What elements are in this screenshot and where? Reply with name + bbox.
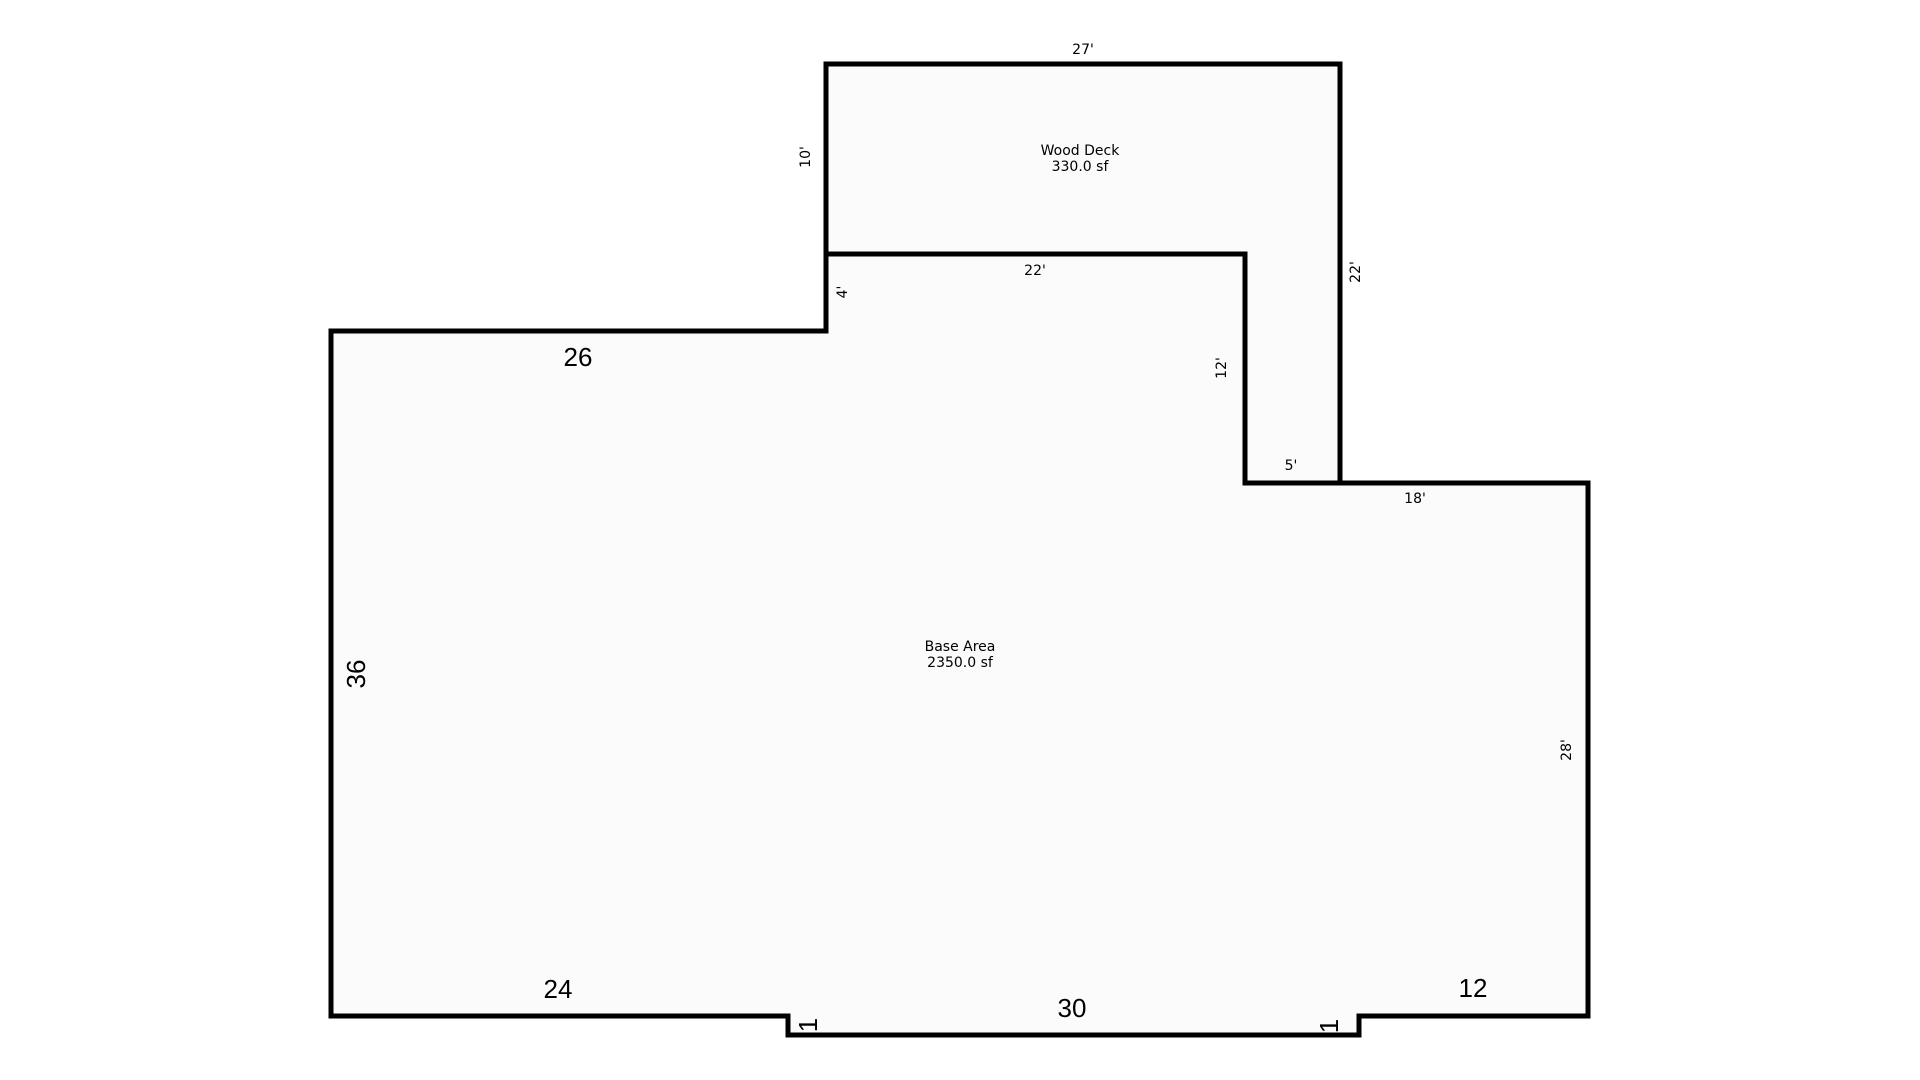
dim-base-left-36: 36 xyxy=(342,660,370,689)
dim-notch-left-1: 1 xyxy=(794,1018,822,1032)
base-area-area: 2350.0 sf xyxy=(925,655,996,671)
dim-deck-bottom-22ft: 22' xyxy=(1024,263,1046,279)
dim-base-right-28ft: 28' xyxy=(1559,739,1575,761)
floorplan-drawing xyxy=(0,0,1920,1080)
dim-notch-right-1: 1 xyxy=(1315,1019,1343,1033)
dim-strip-height-12ft: 12' xyxy=(1214,357,1230,379)
wood-deck-name: Wood Deck xyxy=(1041,143,1120,159)
dim-deck-right-22ft: 22' xyxy=(1348,261,1364,283)
dim-base-bottom-right-12: 12 xyxy=(1459,974,1488,1002)
wood-deck-area: 330.0 sf xyxy=(1041,159,1120,175)
floorplan-canvas: Wood Deck 330.0 sf Base Area 2350.0 sf 2… xyxy=(0,0,1920,1080)
dim-deck-left-10ft: 10' xyxy=(798,146,814,168)
dim-strip-width-5ft: 5' xyxy=(1285,458,1298,474)
dim-base-bottom-middle-30: 30 xyxy=(1058,994,1087,1022)
dim-base-step-4ft: 4' xyxy=(835,286,851,299)
dim-base-top-right-18ft: 18' xyxy=(1404,491,1426,507)
dim-base-top-26: 26 xyxy=(564,343,593,371)
wood-deck-label: Wood Deck 330.0 sf xyxy=(1041,143,1120,175)
dim-base-bottom-left-24: 24 xyxy=(544,975,573,1003)
base-area-name: Base Area xyxy=(925,639,996,655)
base-area-label: Base Area 2350.0 sf xyxy=(925,639,996,671)
dim-deck-top-27ft: 27' xyxy=(1072,42,1094,58)
